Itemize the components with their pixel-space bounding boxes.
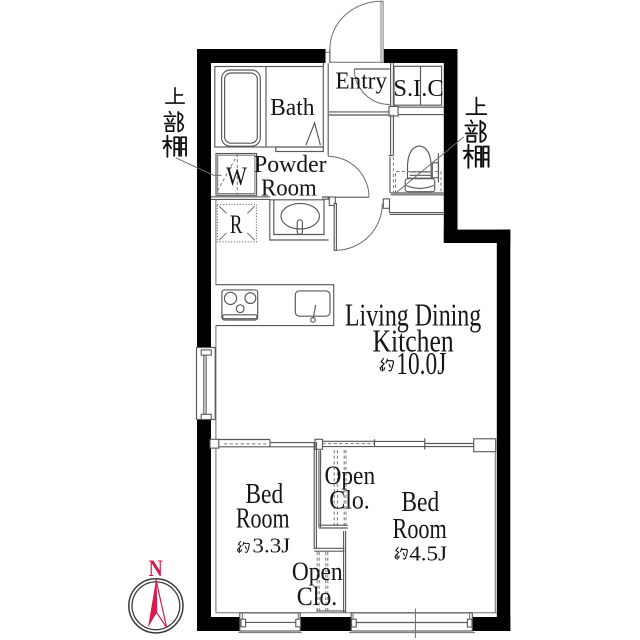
svg-text:Bath: Bath [270,95,315,121]
svg-text:3.3J: 3.3J [252,533,290,557]
svg-text:Bed: Bed [401,486,439,517]
svg-text:R: R [230,210,243,239]
svg-text:10.0J: 10.0J [396,345,446,380]
svg-text:4.5J: 4.5J [409,541,447,565]
svg-text:Entry: Entry [335,68,387,94]
svg-text:S.I.C: S.I.C [393,75,443,102]
svg-text:Clo.: Clo. [329,487,370,515]
svg-text:N: N [149,556,164,582]
svg-text:W: W [226,164,247,192]
svg-text:Room: Room [393,514,448,545]
svg-text:Room: Room [236,504,290,534]
svg-text:Clo.: Clo. [297,583,338,611]
svg-text:Room: Room [261,175,317,202]
